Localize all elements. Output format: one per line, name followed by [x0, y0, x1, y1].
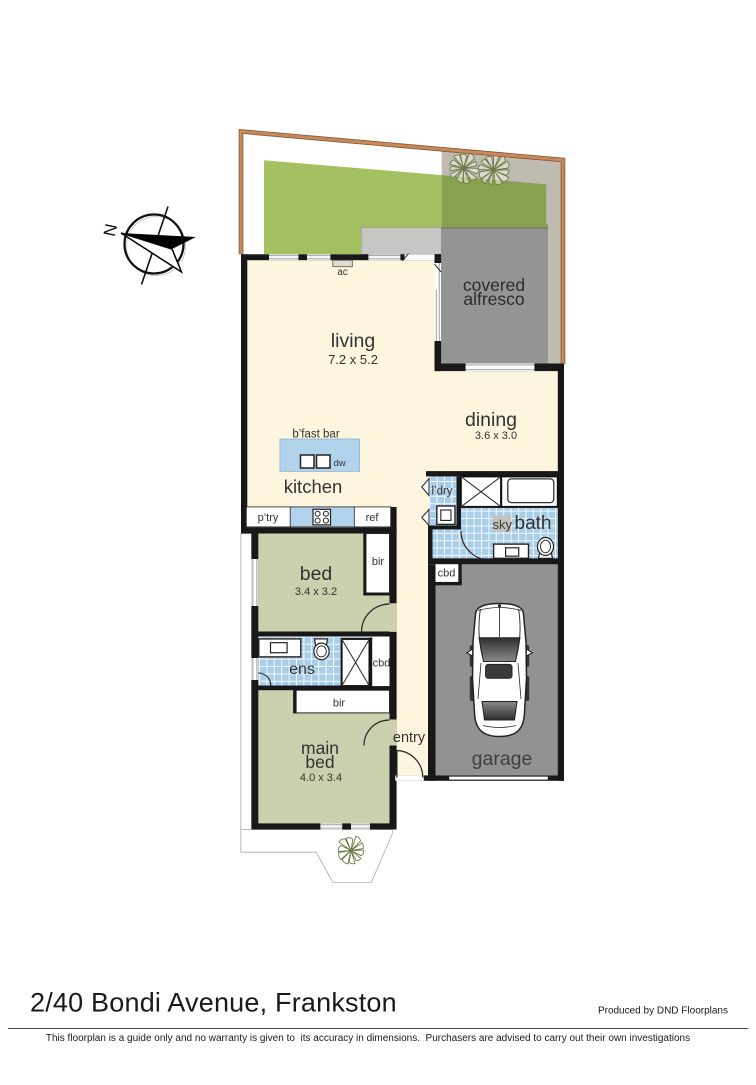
- svg-text:bed: bed: [305, 752, 334, 772]
- svg-text:7.2 x 5.2: 7.2 x 5.2: [328, 352, 378, 367]
- svg-text:kitchen: kitchen: [284, 476, 343, 497]
- svg-text:4.0 x 3.4: 4.0 x 3.4: [300, 772, 342, 784]
- svg-text:ac: ac: [337, 267, 348, 278]
- svg-text:bir: bir: [372, 556, 385, 568]
- svg-text:3.4 x 3.2: 3.4 x 3.2: [295, 586, 337, 598]
- svg-text:ref: ref: [366, 512, 380, 524]
- svg-text:l’dry: l’dry: [431, 486, 452, 498]
- svg-text:2/40 Bondi Avenue, Frankston: 2/40 Bondi Avenue, Frankston: [30, 988, 397, 1018]
- svg-text:Produced by DND Floorplans: Produced by DND Floorplans: [598, 1006, 728, 1017]
- svg-text:cbd: cbd: [438, 568, 456, 580]
- svg-text:garage: garage: [472, 748, 533, 770]
- svg-text:bed: bed: [300, 563, 333, 585]
- svg-text:This floorplan is a guide only: This floorplan is a guide only and no wa…: [46, 1033, 690, 1044]
- svg-text:dw: dw: [334, 458, 346, 469]
- svg-text:entry: entry: [393, 730, 426, 746]
- svg-text:cbd: cbd: [373, 658, 391, 670]
- svg-text:sky: sky: [493, 517, 513, 532]
- svg-text:dining: dining: [465, 409, 517, 431]
- svg-text:ens: ens: [289, 661, 315, 678]
- svg-text:living: living: [331, 330, 375, 352]
- svg-text:alfresco: alfresco: [463, 289, 524, 309]
- svg-text:bir: bir: [333, 698, 346, 710]
- svg-text:bath: bath: [515, 513, 552, 534]
- svg-text:3.6 x 3.0: 3.6 x 3.0: [475, 430, 517, 442]
- svg-text:p’try: p’try: [258, 512, 279, 524]
- svg-text:b’fast bar: b’fast bar: [292, 429, 339, 441]
